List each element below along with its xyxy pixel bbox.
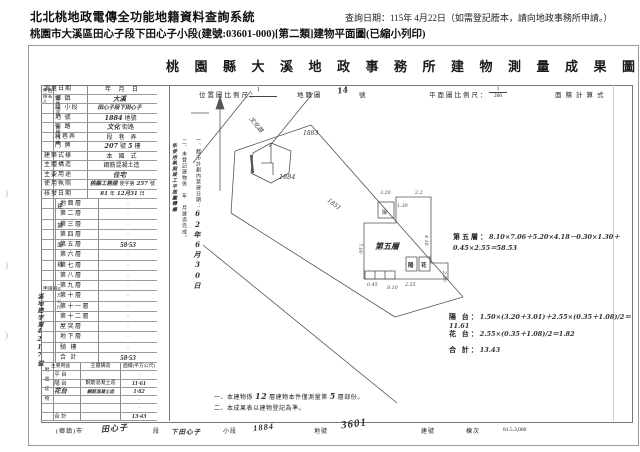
floor-label: 地下層 xyxy=(55,332,99,341)
handwritten-value: 住宅 xyxy=(113,171,126,179)
dimension-label: 2.30 xyxy=(441,270,447,282)
dimension-label: 3.20 xyxy=(380,190,391,196)
handwritten-value: 12月31 xyxy=(117,191,138,197)
attached-area: · xyxy=(121,371,157,378)
floor5-label: 第五層 xyxy=(375,241,400,251)
printed-value: 地號 xyxy=(125,116,137,122)
attached-row: 陽 台 鋼筋混凝土造 11·61 xyxy=(41,380,157,388)
sheet-title: 桃園縣大溪地政事務所建物測量成果圖 xyxy=(166,56,640,75)
site-location-label: 基地坐落 xyxy=(55,96,61,116)
footer-parcel-value: 1884 xyxy=(253,421,275,433)
attached-row: 平 台 · xyxy=(41,371,157,379)
note-text: 層建物本件僅測量第 xyxy=(269,395,328,401)
info-row-value: 住宅 xyxy=(88,171,157,180)
calc-floor5-label: 第五層： xyxy=(453,233,489,241)
printed-value: 使字第 xyxy=(120,182,135,187)
attached-rows: 平 台 · 陽 台 鋼筋混凝土造 11·61 花台 鋼筋混凝土造 1·82 xyxy=(41,371,157,421)
attached-use: 平 台 xyxy=(41,371,81,378)
info-row-value: 本 國 式 xyxy=(88,152,157,161)
floor-area-value: · xyxy=(99,302,157,311)
footer-section-label: 段 xyxy=(153,426,160,435)
handwritten-value: 81 xyxy=(100,191,108,197)
handwritten-value: 大溪 xyxy=(113,95,126,103)
info-row: 測量日期 年 月 日 xyxy=(41,85,157,95)
scan-artifact: ) xyxy=(5,188,8,198)
attached-structure xyxy=(81,404,121,411)
balcony-box-label: 陽 xyxy=(382,209,387,216)
door-plate-label: 建物門牌 xyxy=(55,125,61,145)
info-row-label: 門 牌 xyxy=(41,142,88,151)
info-row-value: 1884地號 xyxy=(88,114,157,123)
printed-value: 號 xyxy=(120,144,126,150)
floor-area-value: · xyxy=(99,261,157,270)
attached-area: 1·82 xyxy=(121,388,157,395)
printed-value: 鋼筋混凝土造 xyxy=(103,163,139,169)
floor-area-value: · xyxy=(99,209,157,218)
info-row-label: 主體構造 xyxy=(41,161,88,170)
parcel-boundary xyxy=(231,125,463,317)
footer-print-code: 81.5.3,000 xyxy=(503,427,526,433)
floor-area-value: · xyxy=(99,199,157,208)
calc-total: 合 計：13.43 xyxy=(449,345,500,355)
floor-row: 地下層 · xyxy=(41,332,157,342)
info-row-label: 主要用途 xyxy=(41,171,88,180)
attached-structure xyxy=(81,371,121,378)
info-row: 主要用途 住宅 xyxy=(41,171,157,181)
attached-header: 主要用途 主體構造 面積(平方公尺) xyxy=(41,363,157,371)
floor-row: 合 計 58·53 xyxy=(41,353,157,363)
floor-label: 合 計 xyxy=(55,353,99,362)
attached-row: · xyxy=(41,396,157,404)
scan-artifact: ) xyxy=(5,260,8,270)
vertical-note-transcribe: 依使用執照竣工平面圖轉繪 xyxy=(171,143,178,213)
footer-town-label: (鄉鎮)市 xyxy=(56,426,83,435)
dimension-label: 0.45 xyxy=(367,282,378,288)
dimension-label: 4.18 xyxy=(423,234,429,246)
floor-area-value: · xyxy=(99,312,157,321)
info-row-value: 鋼筋混凝土造 xyxy=(88,161,157,170)
floor-section-label: 建築面積（平方公尺） xyxy=(55,203,63,317)
info-row-value: 81年12月31日 xyxy=(88,190,157,199)
info-row-label: 段巷弄 xyxy=(41,133,88,142)
floor-area-value: · xyxy=(99,281,157,290)
footer-subsection-value: 下田心子 xyxy=(171,426,201,436)
dimension-label: 8.10 xyxy=(387,285,398,291)
attached-area: 13·43 xyxy=(121,413,157,420)
road-line xyxy=(203,245,397,403)
footer-parcel-label: 地號 xyxy=(314,426,328,435)
floor-area-value: · xyxy=(99,332,157,341)
attached-table: 主要用途 主體構造 面積(平方公尺) 平 台 · 陽 台 鋼筋混凝土造 11·6… xyxy=(41,363,157,421)
road-label: 文化路 xyxy=(247,115,265,135)
floor-row: 屋突層 · xyxy=(41,322,157,332)
floor-area-value: · xyxy=(99,220,157,229)
survey-sketch: 文化路 1883 1884 1851 第五層 陽 陽 花 3.20 1.30 2… xyxy=(191,85,631,421)
info-row-value: 田心子段下田心子 xyxy=(88,104,157,113)
dimension-label: 2.55 xyxy=(404,282,416,288)
bottom-note-1: 一、本建物係 12 層建物本件僅測量第 5 層部份。 xyxy=(214,391,364,401)
attached-row: 花台 鋼筋混凝土造 1·82 xyxy=(41,388,157,396)
north-arrow-icon xyxy=(191,97,224,191)
floor-area-value: 58·53 xyxy=(99,353,157,362)
parcel-number: 1883 xyxy=(303,130,318,137)
info-row-label: 建築式樣 xyxy=(41,152,88,161)
attached-header-area: 面積(平方公尺) xyxy=(121,363,157,370)
printed-value: 樓 xyxy=(135,144,141,150)
handwritten-value: 5 xyxy=(128,142,133,150)
footer-unit-label: 棟次 xyxy=(466,426,480,435)
floor-area-value: · xyxy=(99,230,157,239)
attached-structure xyxy=(81,413,121,420)
attached-structure xyxy=(81,396,121,403)
floor-row: 騎 樓 · xyxy=(41,343,157,353)
calc-flowerbed: 花 台：2.55×(0.35＋1.08)/2＝1.82 xyxy=(449,328,575,339)
handwritten-value: 田心子段下田心子 xyxy=(97,105,141,111)
info-row: 建築式樣 本 國 式 xyxy=(41,152,157,162)
info-row-value: 207號5樓 xyxy=(88,142,157,151)
attached-header-structure: 主體構造 xyxy=(81,363,121,370)
calc-flowerbed-formula: 2.55×(0.35＋1.08)/2＝1.82 xyxy=(480,330,575,338)
attached-header-use: 主要用途 xyxy=(41,363,81,370)
floor-area-value: · xyxy=(99,271,157,280)
system-title: 北北桃地政電傳全功能地籍資料查詢系統 xyxy=(30,8,255,25)
attached-area: · xyxy=(121,404,157,411)
attached-use xyxy=(41,404,81,411)
handwritten-value: 207 xyxy=(104,142,118,150)
attached-row: 合 計 13·43 xyxy=(41,413,157,421)
info-row-label: 鄉 鎮 xyxy=(41,95,88,104)
dimension-label: 7.00 xyxy=(357,243,363,254)
printed-value: 本 國 式 xyxy=(106,154,136,160)
floor-section-unit: （平方公尺） xyxy=(57,281,62,317)
printed-value: 日 xyxy=(140,192,145,197)
handwritten-value: 1884 xyxy=(104,114,122,122)
calc-formula-floor5: 第五層：8.10×7.06＋5.20×4.18－0.30×1.30＋0.45×2… xyxy=(453,231,631,252)
survey-sheet: 桃園縣大溪地政事務所建物測量成果圖 位置圖比例尺： 1 地籍圖 14 號 平面圖… xyxy=(28,45,639,446)
printed-value: 年 月 日 xyxy=(105,87,138,93)
scan-artifact: ) xyxy=(5,330,8,340)
attached-structure: 鋼筋混凝土造 xyxy=(81,380,121,387)
handwritten-floor-count: 12 xyxy=(255,391,267,401)
floor-area-value: · xyxy=(99,250,157,259)
info-row-value: 文化街路 xyxy=(88,123,157,132)
floor-label: 騎 樓 xyxy=(55,343,99,352)
note-text: 一、本建物係 xyxy=(214,395,253,401)
attached-use: 陽 台 xyxy=(41,380,81,387)
dimension-label: 1.30 xyxy=(397,203,408,209)
attached-use: 合 計 xyxy=(41,413,81,420)
attached-use xyxy=(41,396,81,403)
attached-row: · xyxy=(41,404,157,412)
printed-value: 段 巷 弄 xyxy=(106,135,136,141)
attached-area: · xyxy=(121,396,157,403)
handwritten-value: 文化 xyxy=(107,123,120,131)
printed-value: 號 xyxy=(150,182,155,187)
parcel-number: 1884 xyxy=(279,173,296,181)
balcony-box-label: 陽 xyxy=(408,261,414,269)
info-row-label: 段 小段 xyxy=(41,104,88,113)
footer-subsection-label: 小段 xyxy=(223,426,237,435)
vertical-note-2: 二、未登記建物係 年 月建造完成。 xyxy=(180,139,187,241)
floor-area-value: · xyxy=(99,322,157,331)
info-row-label: 核發日期 xyxy=(41,190,88,199)
calc-balcony-label: 陽 台： xyxy=(449,313,480,321)
parcel-number: 1851 xyxy=(326,197,342,212)
flowerbed-box-label: 花 xyxy=(421,261,427,269)
road-line xyxy=(269,93,313,147)
info-row-value: 大溪 xyxy=(88,95,157,104)
handwritten-floor-number: 5 xyxy=(330,391,336,401)
info-row-label: 使用執照 xyxy=(41,180,88,189)
calc-total-value: 13.43 xyxy=(480,346,500,354)
floor-area-value: 58·53 xyxy=(99,240,157,249)
floor-area-value: · xyxy=(99,343,157,352)
attached-structure: 鋼筋混凝土造 xyxy=(81,388,121,395)
footer-building-label: 建號 xyxy=(421,426,435,435)
printed-value: 街路 xyxy=(122,125,134,131)
info-row-value: 段 巷 弄 xyxy=(88,133,157,142)
document-subtitle: 桃園市大溪區田心子段下田心子小段(建號:03601-000)[第二類]建物平面圖… xyxy=(30,26,425,41)
printed-value: 年 xyxy=(110,192,115,197)
info-row: 核發日期 81年12月31日 xyxy=(41,190,157,200)
attached-use: 花台 xyxy=(41,388,81,395)
floor-label: 屋突層 xyxy=(55,322,99,331)
info-row-value: 年 月 日 xyxy=(88,85,157,94)
note-text: 層部份。 xyxy=(338,395,364,401)
info-row-label: 街 路 xyxy=(41,123,88,132)
query-date: 查詢日期：115年 4月22日（如需登記謄本，請向地政事務所申請。） xyxy=(345,11,612,24)
info-row: 主體構造 鋼筋混凝土造 xyxy=(41,161,157,171)
info-row-label: 地 號 xyxy=(41,114,88,123)
floor-section-title: 建築面積 xyxy=(56,203,62,281)
calc-total-label: 合 計： xyxy=(449,346,480,354)
calc-flowerbed-label: 花 台： xyxy=(449,330,480,338)
dimension-label: 2.2 xyxy=(414,190,423,196)
handwritten-value: 257 xyxy=(137,181,148,187)
attached-area: 11·61 xyxy=(121,380,157,387)
handwritten-value: 桃縣工務建 xyxy=(90,181,118,187)
footer-building-value: 3601 xyxy=(340,416,367,431)
floor-area-value: · xyxy=(99,291,157,300)
footer-section-value: 田心子 xyxy=(101,422,129,435)
info-row-value: 桃縣工務建使字第257號 xyxy=(88,180,157,189)
floor-plan-outline xyxy=(364,197,448,279)
info-row-label: 測量日期 xyxy=(41,85,88,94)
bottom-note-2: 二、本成果表以建物登記為準。 xyxy=(214,403,305,412)
info-row: 使用執照 桃縣工務建使字第257號 xyxy=(41,180,157,190)
